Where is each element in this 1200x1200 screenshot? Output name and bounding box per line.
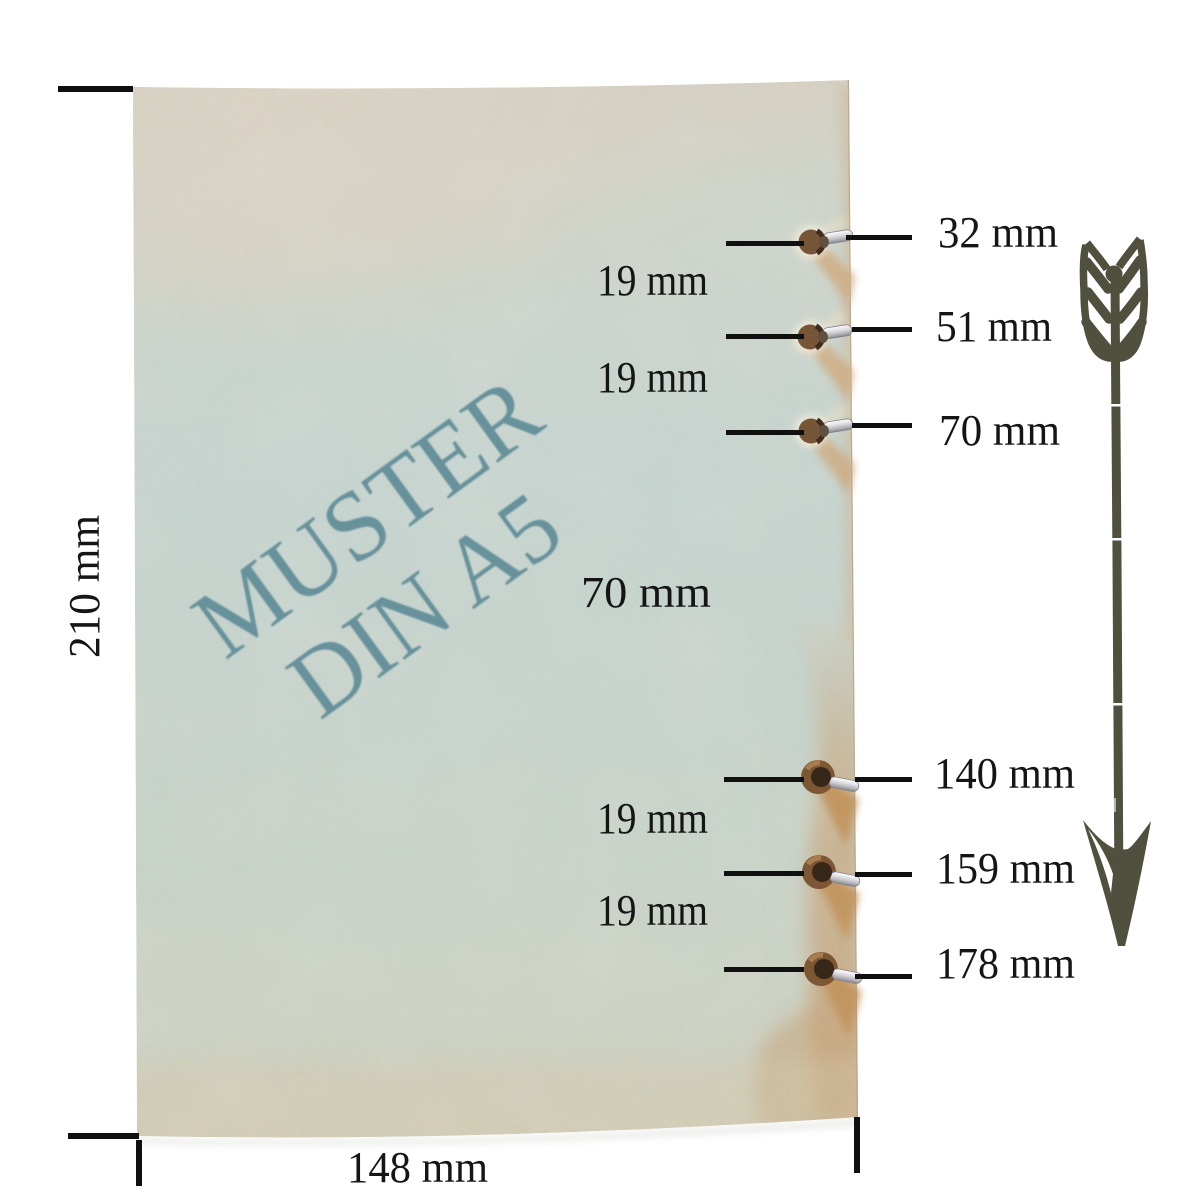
svg-text:19 mm: 19 mm [597, 794, 708, 843]
svg-text:70 mm: 70 mm [939, 406, 1060, 455]
svg-text:210 mm: 210 mm [60, 515, 109, 658]
svg-text:19 mm: 19 mm [597, 353, 708, 402]
svg-text:19 mm: 19 mm [597, 256, 708, 305]
svg-text:148 mm: 148 mm [347, 1143, 488, 1192]
svg-text:32 mm: 32 mm [938, 208, 1058, 257]
svg-text:51 mm: 51 mm [936, 302, 1052, 351]
svg-text:178 mm: 178 mm [936, 939, 1075, 988]
svg-text:140 mm: 140 mm [934, 749, 1075, 798]
svg-text:159 mm: 159 mm [936, 844, 1075, 893]
svg-text:70 mm: 70 mm [581, 568, 711, 617]
svg-text:19 mm: 19 mm [597, 886, 708, 935]
